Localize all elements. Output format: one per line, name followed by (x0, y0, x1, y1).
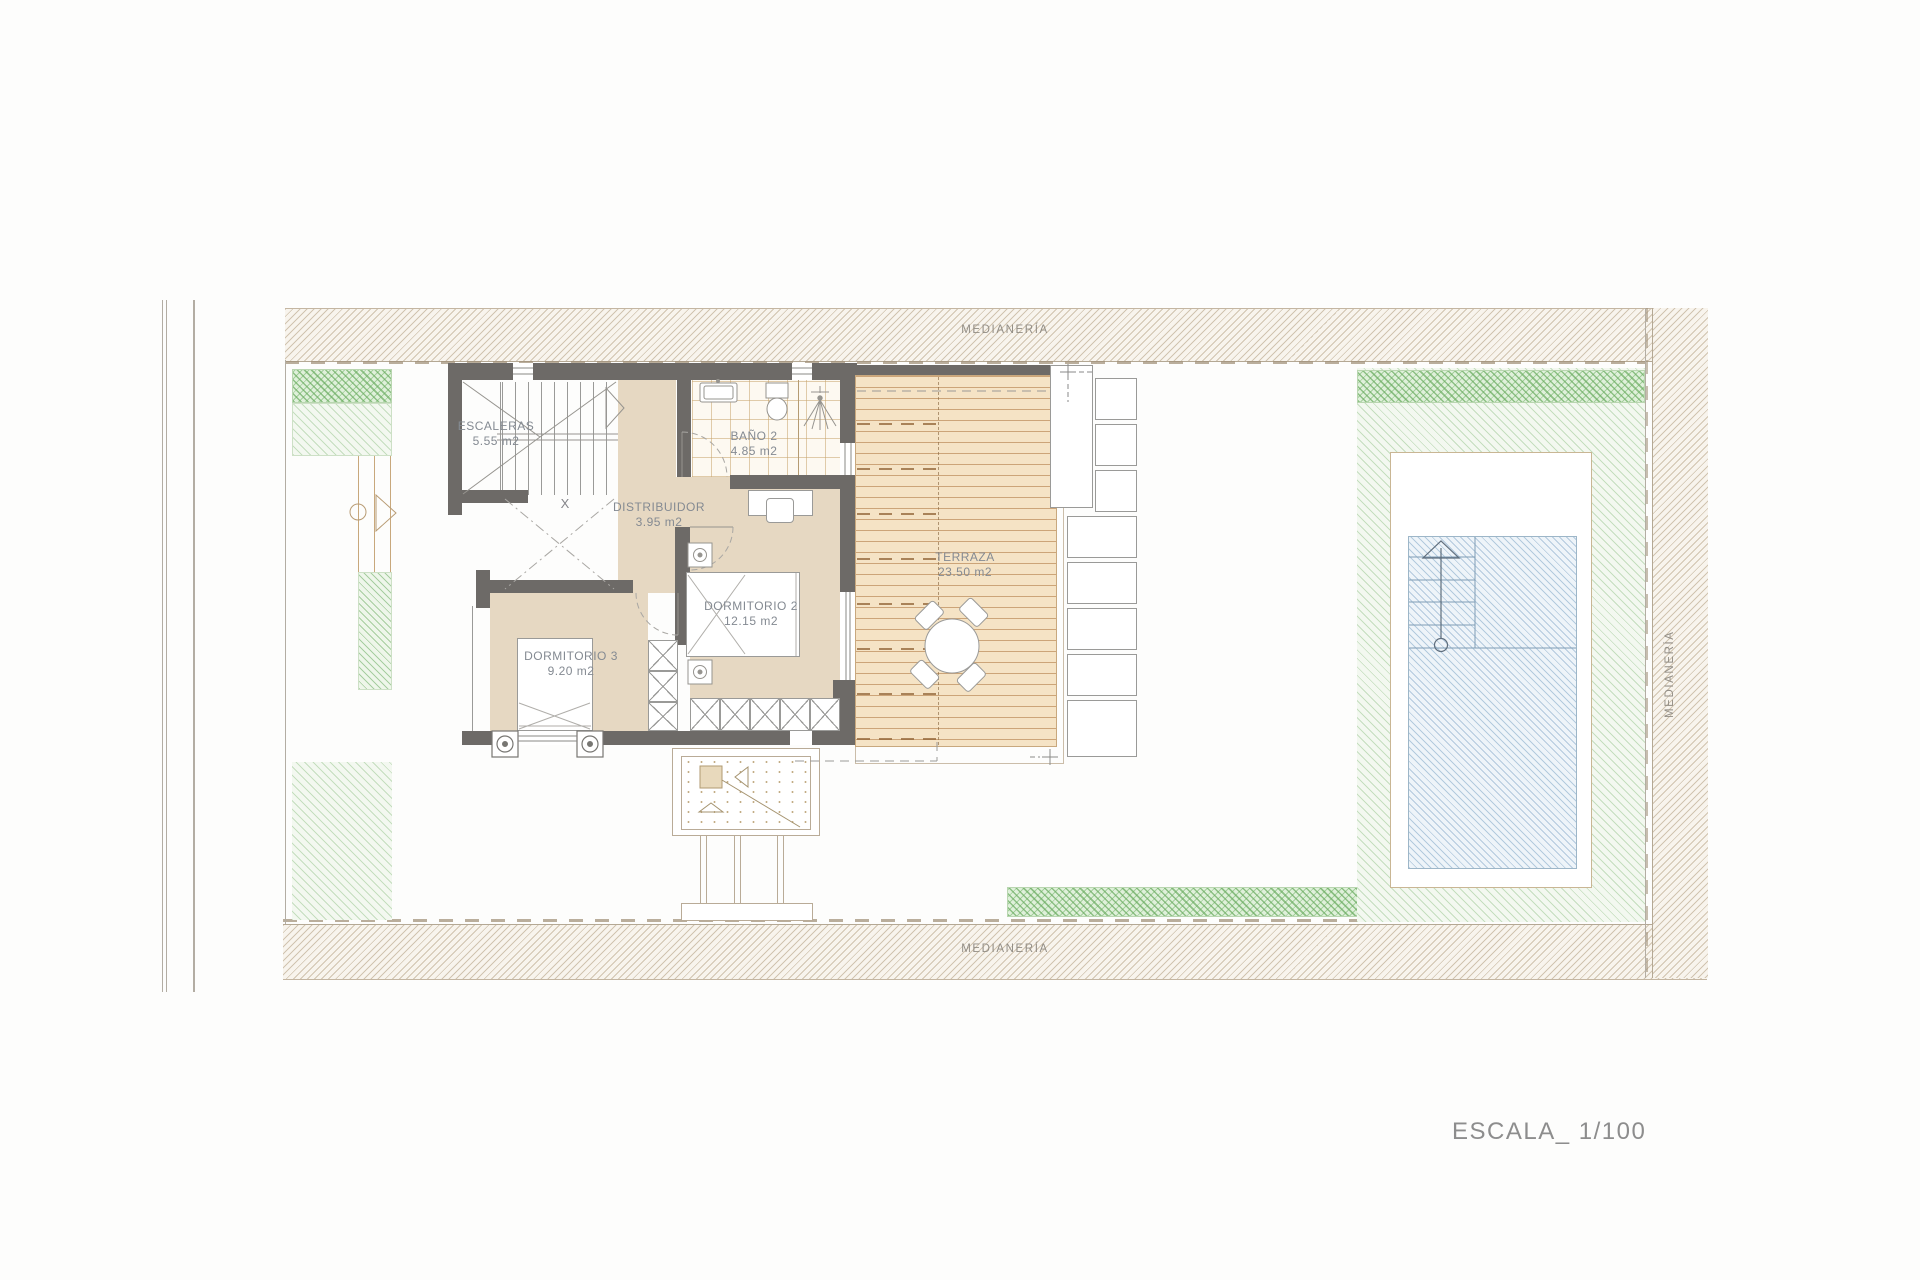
toilet-bowl (767, 398, 787, 420)
party-wall-label-top: MEDIANERÍA (905, 324, 1105, 336)
room-name: BAÑO 2 (654, 429, 854, 444)
shower-icon (804, 386, 836, 430)
room-name: ESCALERAS (396, 419, 596, 434)
room-area: 12.15 m2 (651, 614, 851, 629)
toilet-tank (766, 383, 788, 398)
room-name: DORMITORIO 3 (471, 649, 671, 664)
party-wall-label-right: MEDIANERÍA (1664, 556, 1676, 718)
pool-steps (1409, 537, 1576, 648)
room-label-dormitorio3: DORMITORIO 3 9.20 m2 (471, 649, 671, 679)
linework-overlay (0, 0, 1920, 1280)
scale-label: ESCALA_ 1/100 (1452, 1118, 1646, 1146)
pool-entry-arrow (1423, 541, 1459, 652)
round-table (925, 619, 979, 673)
room-label-distribuidor: DISTRIBUIDOR 3.95 m2 (559, 500, 759, 530)
room-label-dormitorio2: DORMITORIO 2 12.15 m2 (651, 599, 851, 629)
column (492, 731, 603, 757)
bathroom-fixtures (700, 380, 788, 421)
party-wall-label-bottom: MEDIANERÍA (905, 943, 1105, 955)
room-label-escaleras: ESCALERAS 5.55 m2 (396, 419, 596, 449)
terrace-table-set (909, 597, 988, 692)
room-name: DISTRIBUIDOR (559, 500, 759, 515)
room-area: 3.95 m2 (559, 515, 759, 530)
room-area: 23.50 m2 (865, 565, 1065, 580)
room-area: 4.85 m2 (654, 444, 854, 459)
room-name: TERRAZA (865, 550, 1065, 565)
room-name: DORMITORIO 2 (651, 599, 851, 614)
room-area: 5.55 m2 (396, 434, 596, 449)
floor-plan-sheet: ESCALERAS 5.55 m2 BAÑO 2 4.85 m2 DISTRIB… (0, 0, 1920, 1280)
entry-patio-details (699, 766, 800, 827)
room-label-bano2: BAÑO 2 4.85 m2 (654, 429, 854, 459)
side-gate-arrow (350, 495, 396, 531)
void-marker: X (550, 496, 580, 511)
room-label-terraza: TERRAZA 23.50 m2 (865, 550, 1065, 580)
room-area: 9.20 m2 (471, 664, 671, 679)
